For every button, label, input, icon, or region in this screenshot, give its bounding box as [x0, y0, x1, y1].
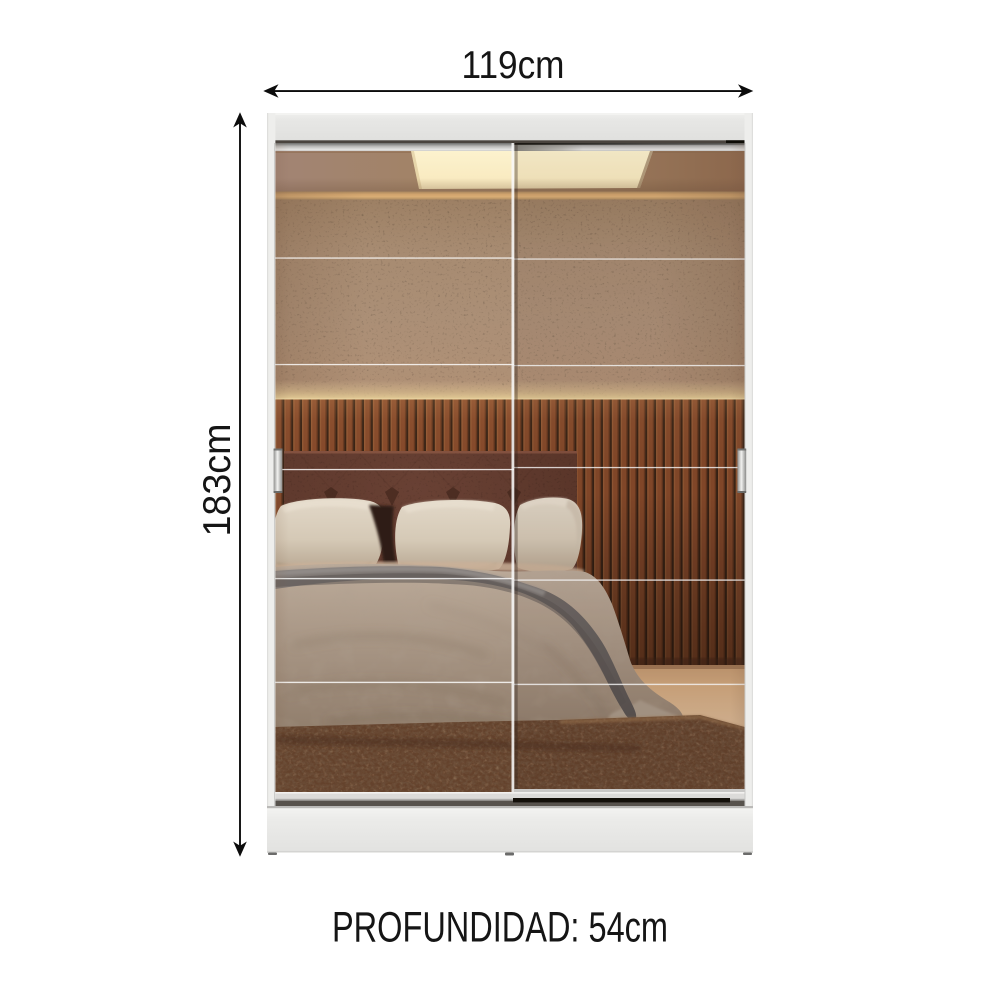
svg-text:PROFUNDIDAD: 54cm: PROFUNDIDAD: 54cm: [332, 905, 668, 952]
svg-text:119cm: 119cm: [462, 44, 565, 87]
svg-text:183cm: 183cm: [196, 424, 239, 537]
